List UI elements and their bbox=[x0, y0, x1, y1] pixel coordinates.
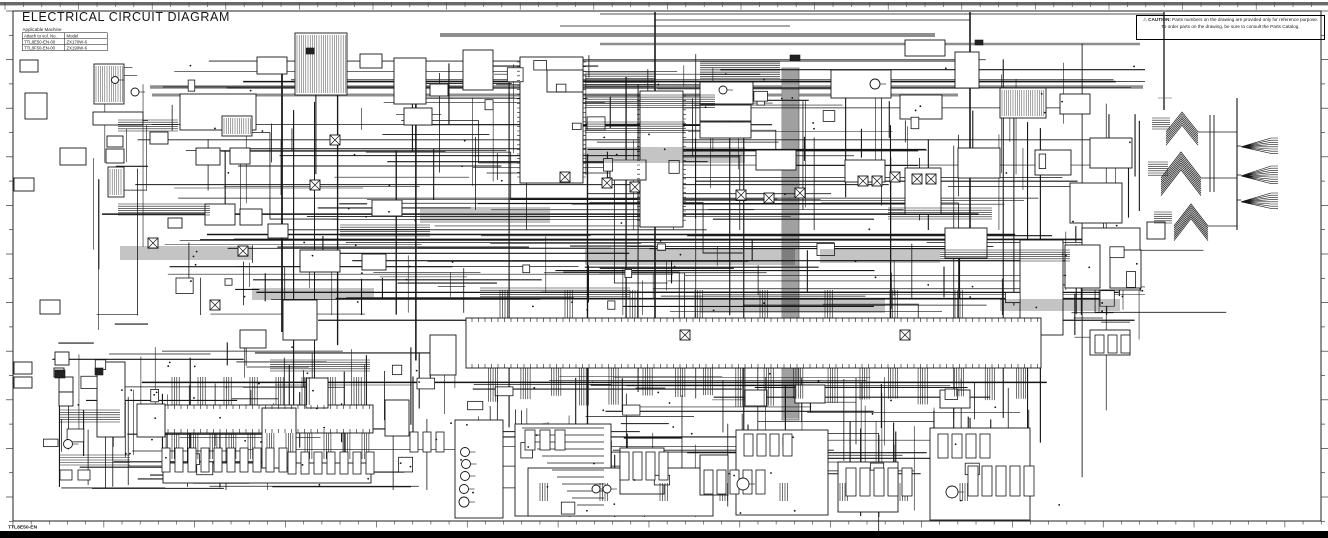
page-title: ELECTRICAL CIRCUIT DIAGRAM bbox=[22, 10, 230, 24]
electrical-circuit-diagram: ELECTRICAL CIRCUIT DIAGRAM Applicable Ma… bbox=[0, 0, 1328, 538]
warning-triangle-icon: ⚠ bbox=[1143, 17, 1147, 22]
caution-line1: Parts numbers on the drawing are provide… bbox=[1172, 17, 1318, 22]
drawing-number: TTL8E50-EN bbox=[8, 524, 37, 530]
table-row: TTL8F50-EN-00 ZX190W-6 bbox=[22, 45, 107, 51]
circuit-schematic bbox=[0, 0, 1328, 538]
caution-line2: To order parts on the drawing, be sure t… bbox=[1161, 24, 1299, 29]
caution-label: CAUTION: bbox=[1148, 17, 1171, 22]
applicable-machine-table: Attach to vol. No. Model TTL8E50-EN-00 Z… bbox=[22, 33, 108, 52]
vol-no-cell: TTL8F50-EN-00 bbox=[22, 45, 65, 51]
title-block: ELECTRICAL CIRCUIT DIAGRAM Applicable Ma… bbox=[22, 10, 230, 75]
caution-note: ⚠ CAUTION: Parts numbers on the drawing … bbox=[1136, 15, 1325, 40]
model-cell: ZX190W-6 bbox=[65, 45, 108, 51]
applicable-machine-label: Applicable Machine bbox=[23, 27, 127, 32]
window-bottom-bar bbox=[0, 531, 1328, 538]
